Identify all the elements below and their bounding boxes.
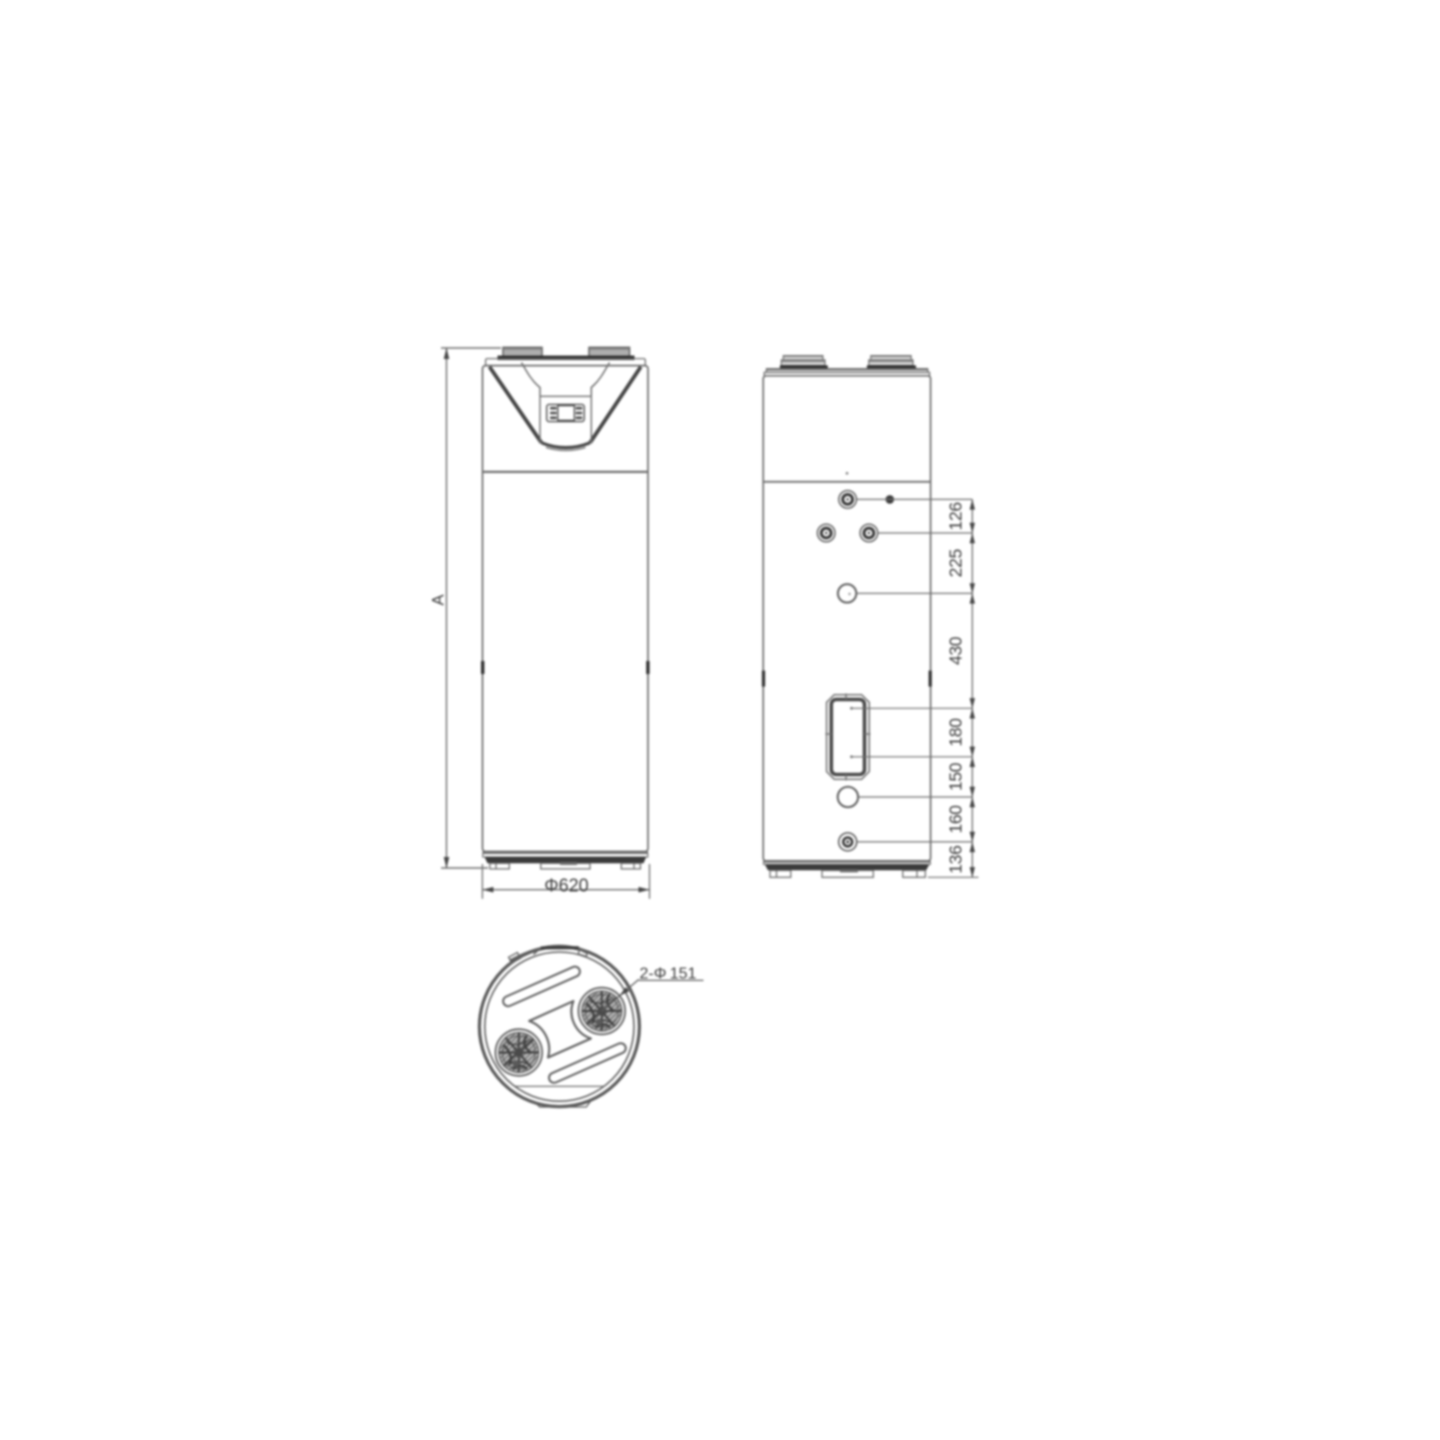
svg-text:136: 136: [946, 845, 966, 873]
svg-text:150: 150: [946, 762, 966, 791]
svg-text:126: 126: [946, 502, 966, 530]
svg-text:225: 225: [946, 549, 966, 577]
svg-text:160: 160: [946, 805, 966, 834]
svg-text:180: 180: [946, 718, 966, 747]
svg-text:Φ620: Φ620: [544, 875, 588, 895]
svg-text:430: 430: [946, 636, 966, 665]
svg-text:A: A: [429, 594, 447, 605]
